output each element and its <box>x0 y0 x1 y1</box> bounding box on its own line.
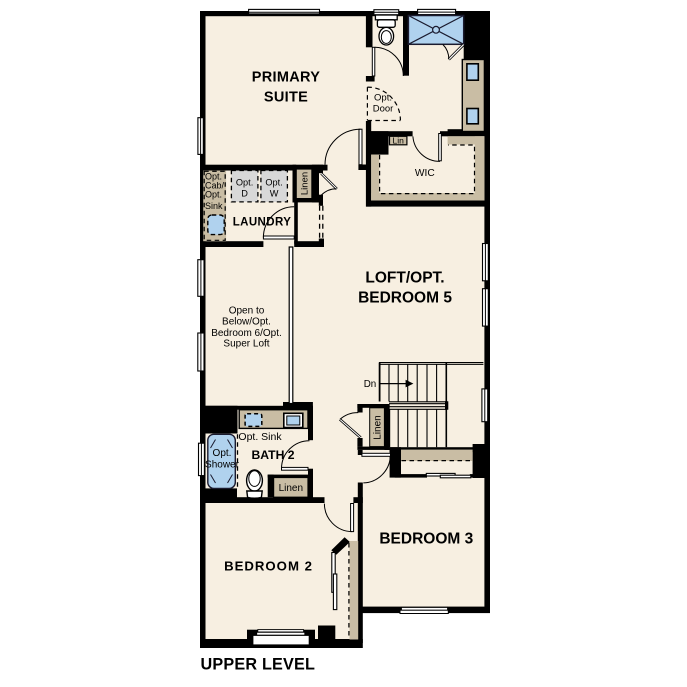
svg-text:Opt.: Opt. <box>374 93 392 104</box>
svg-text:Linen: Linen <box>279 483 303 494</box>
svg-text:LAUNDRY: LAUNDRY <box>233 217 292 229</box>
svg-text:Opt.: Opt. <box>236 178 253 188</box>
svg-text:Sink: Sink <box>205 201 223 211</box>
svg-text:BEDROOM 3: BEDROOM 3 <box>379 531 473 548</box>
svg-text:Opt.: Opt. <box>265 178 282 188</box>
svg-text:W: W <box>270 189 279 199</box>
svg-text:Linen: Linen <box>299 172 310 195</box>
svg-text:Opt.: Opt. <box>205 190 222 200</box>
svg-text:D: D <box>241 189 248 199</box>
svg-text:Linen: Linen <box>373 415 384 439</box>
svg-text:Shower: Shower <box>205 460 240 471</box>
svg-text:SUITE: SUITE <box>264 90 308 106</box>
svg-text:BEDROOM 2: BEDROOM 2 <box>224 559 313 574</box>
svg-text:Below/Opt.: Below/Opt. <box>222 317 271 328</box>
svg-text:UPPER LEVEL: UPPER LEVEL <box>201 656 316 674</box>
svg-text:Dn: Dn <box>364 379 377 390</box>
svg-text:PRIMARY: PRIMARY <box>252 70 320 86</box>
svg-text:Super Loft: Super Loft <box>223 339 269 350</box>
svg-text:WIC: WIC <box>415 168 435 179</box>
svg-text:BEDROOM 5: BEDROOM 5 <box>358 290 452 307</box>
svg-text:Bedroom 6/Opt.: Bedroom 6/Opt. <box>211 328 282 339</box>
svg-text:LOFT/OPT.: LOFT/OPT. <box>365 270 444 287</box>
svg-text:Lin: Lin <box>393 135 405 145</box>
svg-text:Opt.: Opt. <box>213 448 232 459</box>
svg-text:Open to: Open to <box>229 306 265 317</box>
svg-text:Door: Door <box>373 104 394 115</box>
svg-text:Opt. Sink: Opt. Sink <box>238 431 282 443</box>
